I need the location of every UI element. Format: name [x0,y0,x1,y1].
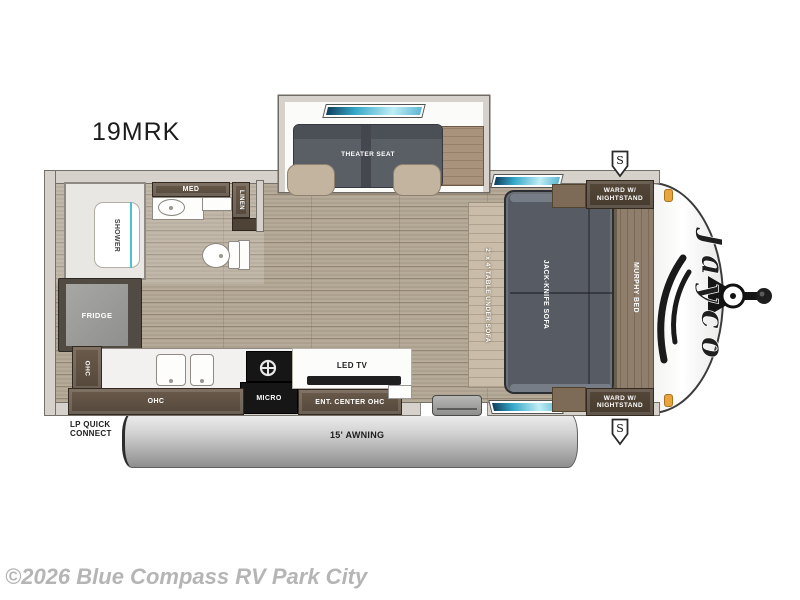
svg-text:S: S [616,422,624,435]
lp-quick-connect: LP QUICK CONNECT [70,420,112,438]
slide-cabinet [440,126,484,186]
marker-light-top [664,189,673,202]
microwave: MICRO [240,382,298,414]
slide-window [322,104,425,118]
watermark: ©2026 Blue Compass RV Park City [5,564,367,590]
theater-footrest-left [287,164,335,196]
ent-center-cabinet: ENT. CENTER OHC [298,389,402,415]
entry-step [432,395,482,416]
lp-line1: LP QUICK [70,420,112,429]
marker-light-bottom [664,394,673,407]
awning-label: 15' AWNING [330,430,384,440]
bath-sink [158,199,185,216]
med-cabinet: MED [152,182,230,197]
jack-knife-sofa: JACK-KNIFE SOFA [504,190,614,394]
jayco-logo: Jayco [650,222,722,390]
linen-label: LINEN [238,190,244,210]
led-tv [307,376,401,385]
ohc-side-label: OHC [84,360,91,376]
ohc-bottom-cabinet: OHC [68,388,244,415]
tv-alcove: LED TV [292,348,412,389]
toilet-bowl [202,243,230,268]
ward-top-line2: NIGHTSTAND [597,195,643,202]
ward-bottom-line2: NIGHTSTAND [597,402,643,409]
kitchen-sink-left [156,354,186,386]
ohc-side-cabinet: OHC [72,346,102,390]
wall-rear [44,170,56,416]
fridge-label: FRIDGE [82,311,113,320]
table-label: 2' x 4' TABLE UNDER SOFA [484,248,491,343]
ohc-bottom-label: OHC [148,398,165,405]
jayco-bird-icon [661,258,683,360]
med-label: MED [183,186,200,193]
sofa-label: JACK-KNIFE SOFA [543,259,550,328]
ward-top: WARD W/ NIGHTSTAND [586,180,654,209]
model-title: 19MRK [92,118,180,147]
linen-cabinet: LINEN [232,182,250,218]
jayco-logo-text: Jayco [694,226,722,358]
theater-seat-label: THEATER SEAT [341,151,395,158]
floorplan-page: 19MRK 15' AWNING Jayco THEATER SEAT [0,0,800,600]
furnace-vent [388,385,412,399]
ward-bottom-line1: WARD W/ [597,395,643,402]
nightstand-top [552,184,586,208]
table-platform: 2' x 4' TABLE UNDER SOFA [468,202,506,388]
speaker-icon-top: S [611,150,629,178]
theater-footrest-right [393,164,441,196]
fridge: FRIDGE [66,284,128,346]
svg-text:S: S [616,154,624,167]
led-tv-label: LED TV [337,361,367,370]
murphy-bed-label: MURPHY BED [632,262,639,313]
nightstand-bottom [552,387,586,412]
shower: SHOWER [64,182,146,280]
bath-vanity-ext [202,197,232,211]
awning-shape [122,412,578,468]
burner-icon [258,358,278,378]
ward-bottom: WARD W/ NIGHTSTAND [586,388,654,416]
micro-label: MICRO [256,395,281,402]
ent-center-label: ENT. CENTER OHC [315,399,384,406]
lp-line2: CONNECT [70,429,112,438]
speaker-icon-bottom: S [611,418,629,446]
ward-top-line1: WARD W/ [597,187,643,194]
kitchen-sink-right [190,354,214,386]
shower-label: SHOWER [114,218,121,251]
cooktop [246,351,298,382]
bath-divider-wall [256,180,264,232]
